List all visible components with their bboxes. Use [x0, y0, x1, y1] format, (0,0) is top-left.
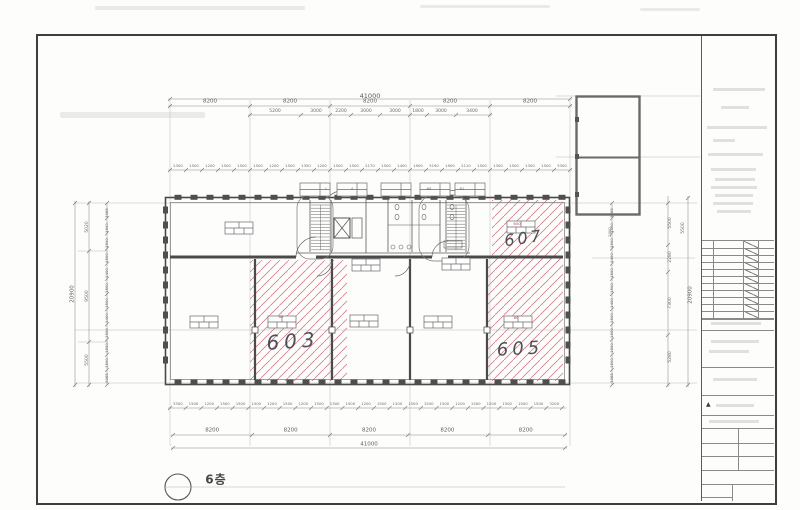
dim-label: 1500: [189, 402, 199, 406]
dim-label: 1500: [105, 358, 109, 368]
dim-label: 1500: [333, 164, 343, 168]
revision-cell: [758, 304, 774, 311]
dim-label: 2170: [365, 164, 375, 168]
revision-cell: [743, 248, 759, 255]
revision-cell: [743, 241, 759, 248]
revision-cell: [758, 255, 774, 262]
titleblock-faint-text: [715, 178, 755, 181]
dim-label: 60: [514, 316, 519, 320]
dim-label: 1200: [204, 402, 214, 406]
dim-bottom-total: 41000: [360, 442, 378, 448]
revision-cell: [758, 290, 774, 297]
revision-cell: [758, 311, 774, 318]
dim-label: 1500: [283, 402, 293, 406]
titleblock-faint-text: [715, 194, 753, 197]
dim-label: 5500: [669, 217, 674, 228]
dim-label: 1500: [541, 164, 551, 168]
dim-label: 1500: [377, 402, 387, 406]
grid-lines: [75, 96, 700, 446]
revision-cell: [713, 297, 729, 304]
dim-label: 2200: [335, 110, 346, 115]
titleblock-divider: [702, 415, 774, 416]
elevator: [334, 218, 362, 238]
dim-label: 1500: [610, 343, 614, 353]
titleblock-faint-text: [711, 186, 757, 189]
dim-label: 1350: [301, 164, 311, 168]
titleblock-grid-line: [702, 497, 732, 498]
dim-label: 1500: [251, 402, 261, 406]
window-tag-blocks: [300, 183, 485, 196]
revision-cell: [743, 276, 759, 283]
dim-label: 1500: [253, 164, 263, 168]
north-triangle-icon: ▲: [706, 401, 711, 408]
dim-label: 1500: [502, 402, 512, 406]
dim-label: 1500: [477, 164, 487, 168]
dim-label: 1200: [455, 402, 465, 406]
titleblock-faint-text: [713, 202, 753, 205]
floor-label: 6층: [205, 471, 226, 488]
titleblock-faint-text: [713, 378, 757, 381]
titleblock-faint-text: [713, 88, 765, 91]
titleblock-divider: [702, 330, 774, 331]
dim-label: 1200: [205, 164, 215, 168]
dim-label: 2110: [461, 164, 471, 168]
revision-cell: [713, 241, 729, 248]
dim-label: 1500: [610, 268, 614, 278]
revision-cell: [713, 311, 729, 318]
detached-structure: [575, 97, 640, 215]
dim-label: 8200: [205, 428, 219, 434]
dim-label: 3085: [610, 208, 614, 218]
dim-label: 8200: [523, 99, 537, 105]
revision-cell: [758, 297, 774, 304]
revision-cell: [743, 269, 759, 276]
dim-label: 8200: [443, 99, 457, 105]
revision-cell: [758, 241, 774, 248]
titleblock-faint-text: [713, 139, 735, 142]
dim-label: 1500: [440, 402, 450, 406]
titleblock-faint-text: [708, 153, 763, 156]
dim-label: 1500: [610, 238, 614, 248]
dim-label: 1500: [105, 298, 109, 308]
dim-label: 1500: [236, 402, 246, 406]
revision-cell: [758, 276, 774, 283]
revision-cell: [758, 283, 774, 290]
revision-cell: [743, 283, 759, 290]
handwritten-room-603: 603: [266, 327, 321, 355]
dim-label: 1500: [610, 223, 614, 233]
handwritten-room-605: 605: [496, 337, 543, 360]
revision-cell: [743, 290, 759, 297]
titleblock-faint-text: [711, 168, 756, 171]
titleblock-faint-text: [709, 420, 759, 423]
dim-label: 3200: [549, 402, 559, 406]
titleblock-grid-line: [738, 428, 739, 470]
dim-label: 8200: [519, 428, 533, 434]
dim-label: 5200: [269, 110, 280, 115]
dim-label: 1300: [493, 164, 503, 168]
dim-label: 5280: [669, 351, 674, 362]
dim-label: 1500: [610, 328, 614, 338]
titleblock-grid-line: [702, 484, 774, 485]
dim-label: 8200: [284, 428, 298, 434]
titleblock-grid-line: [702, 470, 774, 471]
floor-plan-drawing: [0, 0, 800, 510]
dim-label: 1500: [424, 402, 434, 406]
titleblock-faint-text: [711, 340, 759, 343]
titleblock-divider: [702, 367, 774, 368]
dim-label: 3000: [389, 110, 400, 115]
revision-cell: [713, 276, 729, 283]
dim-label: 1300: [330, 402, 340, 406]
dim-label: 1500: [285, 164, 295, 168]
dim-label: 1500: [381, 164, 391, 168]
dim-label: 1900: [413, 164, 423, 168]
revision-cell: [713, 262, 729, 269]
dim-label: 3300: [173, 402, 183, 406]
dim-label: 1500: [105, 343, 109, 353]
dim-label: 5500: [82, 0, 93, 2]
dim-left-total: 20900: [70, 285, 76, 303]
dim-label: 3000: [360, 110, 371, 115]
dim-label: 3400: [466, 110, 477, 115]
revision-cell: [758, 269, 774, 276]
dim-label: 65: [427, 187, 432, 191]
revision-cell: [743, 297, 759, 304]
desk-blocks: [190, 221, 535, 328]
dim-label: 1500: [314, 402, 324, 406]
dim-label: 1500: [220, 402, 230, 406]
dim-label: 1200: [317, 164, 327, 168]
dim-label: 1400: [397, 164, 407, 168]
dim-label: 1500: [105, 253, 109, 263]
dim-label: 1500: [105, 223, 109, 233]
revision-cell: [713, 290, 729, 297]
dim-label: 61: [460, 187, 465, 191]
dim-label: 4: [351, 187, 353, 191]
dim-label: 8200: [363, 99, 377, 105]
dim-label: 1300: [525, 164, 535, 168]
titleblock-divider: [702, 395, 774, 396]
dim-label: 8200: [362, 428, 376, 434]
dim-label: 1400: [105, 313, 109, 323]
titleblock-faint-text: [707, 126, 767, 129]
dim-label: 1200: [393, 402, 403, 406]
dim-label: 3300: [557, 164, 567, 168]
dim-label: 8200: [440, 428, 454, 434]
scanned-floorplan-page: 41000 41000 20900 20900 5500 2000 6층 603…: [0, 0, 800, 510]
revision-cell: [713, 304, 729, 311]
titleblock-faint-text: [717, 210, 751, 213]
dim-label: 1500: [237, 164, 247, 168]
dim-label: 8200: [203, 99, 217, 105]
title-block: ▲: [701, 36, 774, 501]
revision-cell: [713, 248, 729, 255]
dim-label: 2300: [173, 164, 183, 168]
dim-label: 1500: [189, 164, 199, 168]
dim-label: 1500: [105, 238, 109, 248]
dim-label: 1500: [534, 402, 544, 406]
titleblock-faint-text: [716, 404, 754, 407]
dim-label: 600: [513, 222, 520, 226]
dim-label: 1200: [267, 402, 277, 406]
revision-cell: [713, 283, 729, 290]
revision-cell: [743, 304, 759, 311]
dim-label: 1400: [105, 268, 109, 278]
dim-label: 1500: [471, 402, 481, 406]
dim-label: 1400: [610, 253, 614, 263]
dim-label: 2280: [669, 251, 674, 262]
dim-label: 3000: [310, 110, 321, 115]
dim-label: 3085: [105, 373, 109, 383]
dim-label: 1500: [105, 283, 109, 293]
dim-label: 5020: [86, 221, 91, 232]
revision-cell: [713, 255, 729, 262]
dim-label: 3190: [429, 164, 439, 168]
dim-label: 1200: [487, 402, 497, 406]
revision-cell: [713, 269, 729, 276]
dim-label: 7300: [669, 297, 674, 308]
titleblock-faint-text: [709, 350, 749, 353]
dim-label: 1500: [518, 402, 528, 406]
toilet-fixtures: [391, 204, 462, 249]
titleblock-faint-text: [721, 106, 749, 109]
dim-label: 8200: [283, 99, 297, 105]
dim-label: 1500: [610, 283, 614, 293]
revision-cell: [743, 311, 759, 318]
revision-row: [702, 311, 774, 319]
dim-label: 3085: [610, 373, 614, 383]
dim-label: 1500: [610, 313, 614, 323]
dim-structure: 5500: [682, 222, 687, 233]
dim-right-total: 20900: [688, 286, 694, 304]
dim-label: 9500: [86, 290, 91, 301]
dim-label: 1200: [298, 402, 308, 406]
revision-table: [702, 240, 774, 320]
dim-label: 1500: [610, 358, 614, 368]
dim-label: 1500: [345, 402, 355, 406]
dim-label: 1500: [509, 164, 519, 168]
dim-label: 3000: [435, 110, 446, 115]
dim-label: 5500: [86, 354, 91, 365]
dim-label: 1: [325, 187, 327, 191]
dim-label: 3085: [105, 208, 109, 218]
revision-cell: [743, 255, 759, 262]
dim-label: 60: [279, 315, 284, 319]
titleblock-grid-line: [732, 484, 733, 501]
titleblock-faint-text: [711, 322, 761, 325]
revision-cell: [758, 262, 774, 269]
dim-label: 1200: [269, 164, 279, 168]
revision-cell: [743, 262, 759, 269]
revision-cell: [758, 248, 774, 255]
dim-label: 1500: [349, 164, 359, 168]
dim-label: 1400: [610, 298, 614, 308]
dim-label: 1500: [408, 402, 418, 406]
dim-label: 1500: [105, 328, 109, 338]
dim-label: 1500: [221, 164, 231, 168]
dim-label: 1800: [412, 110, 423, 115]
dim-label: 1200: [361, 402, 371, 406]
dim-label: 1900: [445, 164, 455, 168]
